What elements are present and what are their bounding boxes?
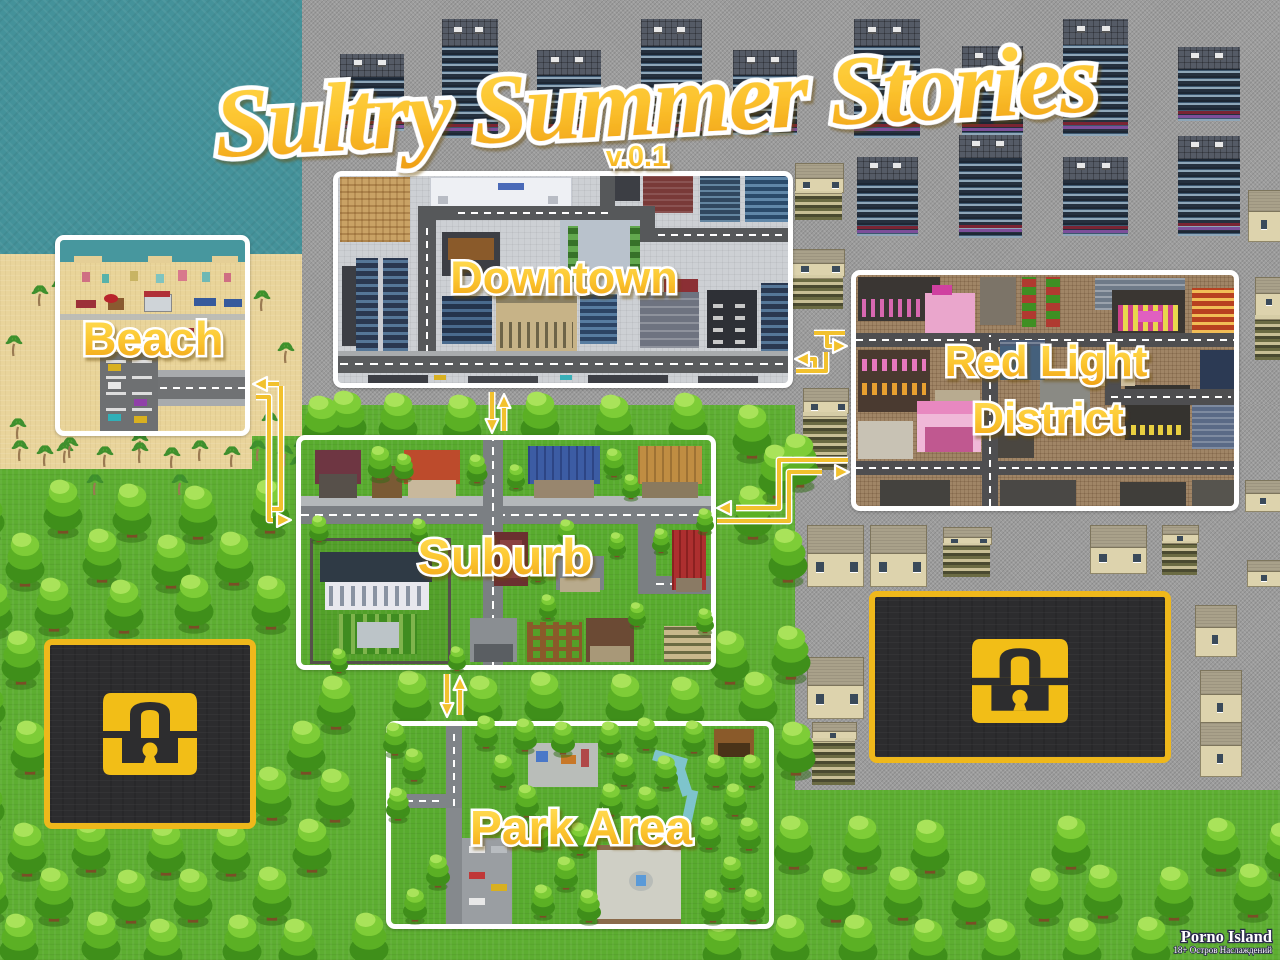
svg-text:District: District — [972, 394, 1124, 443]
svg-text:Park Area: Park Area — [470, 802, 693, 855]
svg-text:v.0.1: v.0.1 — [606, 141, 668, 173]
svg-text:Porno Island: Porno Island — [1181, 927, 1272, 946]
svg-text:Beach: Beach — [82, 312, 223, 365]
svg-text:18+ Остров Наслаждений: 18+ Остров Наслаждений — [1173, 945, 1272, 955]
svg-text:Suburb: Suburb — [418, 529, 593, 585]
svg-text:Red Light: Red Light — [945, 337, 1148, 386]
svg-text:Downtown: Downtown — [450, 252, 677, 303]
